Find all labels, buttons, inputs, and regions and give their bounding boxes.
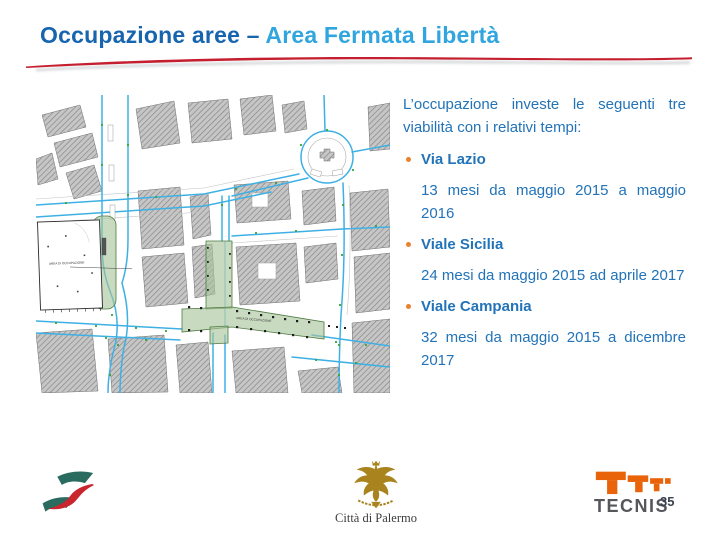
intro-text: L’occupazione investe le seguenti tre vi…: [403, 93, 686, 139]
palermo-caption: Città di Palermo: [330, 511, 422, 526]
palermo-logo: Città di Palermo: [330, 460, 422, 526]
swoosh-divider: [26, 54, 694, 76]
tecnis-cranes-icon: [594, 466, 680, 496]
street-duration: 13 mesi da maggio 2015 a maggio 2016: [403, 179, 686, 225]
list-item-viale-campania: Viale Campania: [403, 295, 686, 318]
fs-trenitalia-logo-icon: [38, 468, 106, 524]
street-duration: 24 mesi da maggio 2015 ad aprile 2017: [403, 264, 686, 287]
street-name: Viale Sicilia: [421, 236, 503, 253]
title-prefix: Occupazione aree –: [40, 22, 265, 48]
tecnis-caption: TECNIS: [594, 496, 690, 517]
street-duration: 32 mesi da maggio 2015 a dicembre 2017: [403, 326, 686, 372]
street-name: Viale Campania: [421, 298, 532, 315]
title-highlight: Area Fermata Libertà: [265, 22, 499, 48]
street-name: Via Lazio: [421, 151, 486, 168]
list-item-viale-sicilia: Viale Sicilia: [403, 233, 686, 256]
page-title: Occupazione aree – Area Fermata Libertà: [40, 22, 499, 49]
bullet-icon: [406, 157, 411, 162]
slide: Occupazione aree – Area Fermata Libertà: [0, 0, 720, 540]
bullet-icon: [406, 242, 411, 247]
bullet-icon: [406, 304, 411, 309]
map-image: AREA DI OCCUPAZIONE AREA DI OCCUPAZIONE: [36, 95, 390, 393]
palermo-eagle-icon: [348, 460, 404, 510]
page-number: 35: [660, 494, 674, 509]
list-item-via-lazio: Via Lazio: [403, 148, 686, 171]
tecnis-logo: TECNIS: [594, 466, 690, 517]
content-panel: L’occupazione investe le seguenti tre vi…: [403, 93, 686, 380]
